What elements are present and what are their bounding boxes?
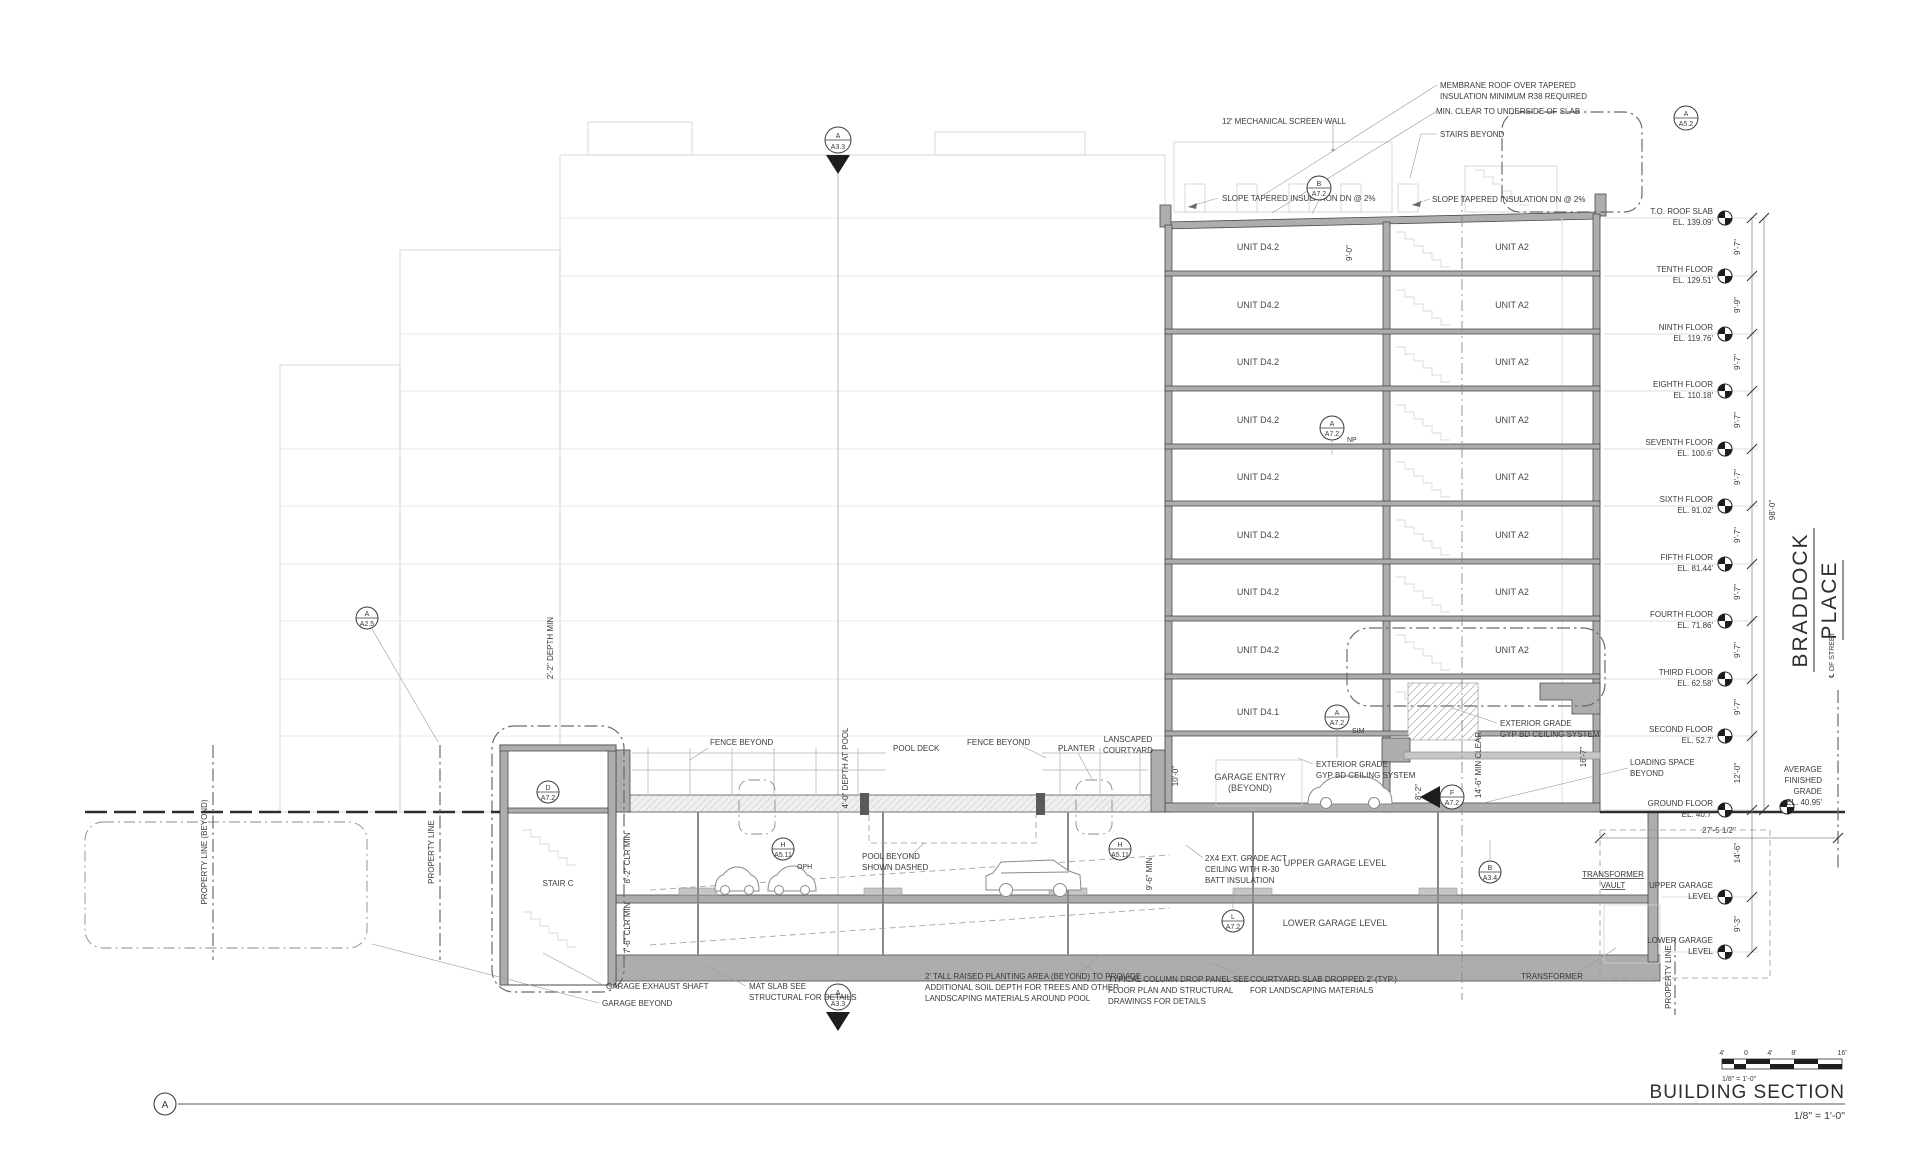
dim: 9'-7"	[1733, 527, 1742, 543]
wall-left	[1165, 225, 1172, 812]
scale-bar-4l: 4'	[1719, 1050, 1724, 1057]
scale-bar: 4' 0 4' 8' 16' 1/8" = 1'-0"	[1719, 1050, 1846, 1083]
callout-h-a511-right: H A5.11	[1109, 838, 1131, 860]
dim: 9'-9"	[1733, 297, 1742, 313]
dim: 9'-7"	[1733, 469, 1742, 485]
upper-garage-label: UPPER GARAGE LEVEL	[1284, 858, 1387, 868]
callout-sim: SIM	[1352, 728, 1365, 735]
level-name: FIFTH FLOOR	[1661, 553, 1714, 562]
car-small-1	[715, 867, 759, 895]
level-el: EL. 71.86'	[1677, 621, 1713, 630]
garage-beyond-note: GARAGE BEYOND	[602, 999, 672, 1008]
landscaped-courtyard-1: LANSCAPED	[1104, 735, 1153, 744]
courtyard-slab-note-1: COURTYARD SLAB DROPPED 2' (TYP.)	[1250, 975, 1397, 984]
unit-label: UNIT A2	[1495, 472, 1529, 482]
level-el: LEVEL	[1688, 947, 1713, 956]
mat-slab-note-1: MAT SLAB SEE	[749, 982, 806, 991]
unit-label: UNIT D4.2	[1237, 300, 1279, 310]
avg-grade-label: AVERAGE FINISHED GRADE EL. 40.95'	[1784, 765, 1823, 807]
pool-dashed-note-1: POOL BEYOND	[862, 852, 920, 861]
courtyard-wall-dim: 10'-0"	[1171, 766, 1180, 787]
callout-l-a72: L A7.2	[1222, 910, 1244, 932]
callout-sheet: A5.2	[1679, 121, 1694, 128]
hatched-ceiling-area	[1408, 683, 1478, 740]
callout-sheet: A2.5	[360, 621, 375, 628]
entry-ceiling	[1404, 752, 1600, 759]
callout-letter: B	[1488, 865, 1493, 872]
wall-interior	[1383, 222, 1390, 812]
unit-label: UNIT A2	[1495, 300, 1529, 310]
section-flag-top: A A3.3	[825, 127, 851, 174]
callout-letter: H	[780, 842, 785, 849]
fence-beyond-right: FENCE BEYOND	[967, 738, 1030, 747]
dim: 9'-7"	[1733, 699, 1742, 715]
background-floor-lines	[280, 218, 1165, 736]
unit-label: UNIT D4.2	[1237, 645, 1279, 655]
level-name: SIXTH FLOOR	[1660, 495, 1714, 504]
callout-np: NP	[1347, 437, 1357, 444]
level-el: EL. 62.58'	[1677, 679, 1713, 688]
level-name: NINTH FLOOR	[1659, 323, 1713, 332]
dim: 9'-7"	[1733, 239, 1742, 255]
garage-entry-label-1: GARAGE ENTRY	[1214, 772, 1285, 782]
fence-beyond-left: FENCE BEYOND	[710, 738, 773, 747]
garage-exhaust-note: GARAGE EXHAUST SHAFT	[606, 982, 709, 991]
detail-letter: A	[162, 1100, 169, 1111]
callout-a-a52: A A5.2	[1674, 106, 1698, 130]
callout-b-a34: B A3.4	[1479, 840, 1501, 883]
level-name: FOURTH FLOOR	[1650, 610, 1713, 619]
roof-slab	[1165, 212, 1600, 229]
section-arrow-top	[826, 155, 850, 174]
loading-height-dim: 16'-7"	[1579, 747, 1588, 768]
unit-label: UNIT A2	[1495, 530, 1529, 540]
level-el: EL. 40.7'	[1682, 810, 1714, 819]
overall-dim: 98'-0"	[1768, 500, 1777, 521]
transformer-note: TRANSFORMER	[1521, 972, 1583, 981]
callout-sheet: A7.2	[1330, 720, 1345, 727]
property-line-beyond-label: PROPERTY LINE (BEYOND)	[200, 799, 209, 904]
callout-a-a25: A A2.5	[356, 607, 438, 742]
callout-sheet: A7.2	[541, 795, 556, 802]
drop-panel-note-2: FLOOR PLAN AND STRUCTURAL	[1108, 986, 1234, 995]
avg-grade-2: FINISHED	[1785, 776, 1823, 785]
membrane-note-1: MEMBRANE ROOF OVER TAPERED	[1440, 81, 1576, 90]
dim: 9'-7"	[1733, 354, 1742, 370]
slope-note-right: SLOPE TAPERED INSULATION DN @ 2%	[1432, 195, 1586, 204]
unit-labels: UNIT D4.2 UNIT D4.2 UNIT D4.2 UNIT D4.2 …	[1214, 242, 1529, 928]
callout-sheet: A7.2	[1325, 431, 1340, 438]
callout-letter: A	[1684, 111, 1689, 118]
street-name-braddock: BRADDOCK	[1789, 532, 1812, 667]
underground-structure-beyond	[85, 822, 367, 948]
deck-wall-right	[1151, 750, 1165, 812]
scale-bar-4r: 4'	[1767, 1050, 1772, 1057]
pool-deck-label: POOL DECK	[893, 744, 940, 753]
unit-label: UNIT D4.2	[1237, 415, 1279, 425]
pool-wall-right	[1036, 793, 1045, 815]
membrane-note-2: INSULATION MINIMUM R38 REQUIRED	[1440, 92, 1587, 101]
callout-b-a72: B A7.2	[1307, 176, 1331, 214]
entry-clear-dim: 14'-6" MIN CLEAR	[1474, 732, 1483, 798]
level-name: SEVENTH FLOOR	[1645, 438, 1713, 447]
level-name: EIGHTH FLOOR	[1653, 380, 1713, 389]
unit-label: UNIT A2	[1495, 242, 1529, 252]
pool-dashed-note-2: SHOWN DASHED	[862, 863, 928, 872]
drop-panel-note-3: DRAWINGS FOR DETAILS	[1108, 997, 1206, 1006]
dim: 14'-6"	[1733, 843, 1742, 864]
avg-grade-1: AVERAGE	[1784, 765, 1822, 774]
ext-gyp-second-2: GYP BD CEILING SYSTEM	[1500, 730, 1600, 739]
lower-garage-label: LOWER GARAGE LEVEL	[1283, 918, 1388, 928]
vault-label-2: VAULT	[1601, 881, 1626, 890]
level-name: TENTH FLOOR	[1657, 265, 1714, 274]
car-entry	[1308, 776, 1392, 809]
level-name: UPPER GARAGE	[1649, 881, 1713, 890]
parapet-left	[1160, 205, 1171, 227]
callout-letter: F	[1450, 790, 1454, 797]
callout-sheet: A7.2	[1312, 191, 1327, 198]
section-flag-top-sheet: A3.3	[831, 144, 846, 151]
street-offset-dim: 27'-5 1/2"	[1702, 826, 1736, 835]
callout-sheet: A5.11	[1111, 852, 1129, 859]
roof-stair-overrun	[1465, 166, 1557, 212]
property-line-left-label: PROPERTY LINE	[427, 820, 436, 884]
callout-sheet: A3.4	[1483, 875, 1498, 882]
ext-gyp-ground-1: EXTERIOR GRADE	[1316, 760, 1388, 769]
courtyard-slab-note-2: FOR LANDSCAPING MATERIALS	[1250, 986, 1373, 995]
fence-graphic	[632, 748, 1148, 795]
detail-letter-bubble: A	[154, 1093, 176, 1115]
wall-right	[1593, 214, 1600, 812]
section-flag-top-letter: A	[836, 133, 841, 140]
level-el: EL. 129.51'	[1673, 276, 1714, 285]
building-section-sheet: A A3.3 A A3.3	[0, 0, 1920, 1152]
parapet-right	[1595, 194, 1606, 216]
stair-c-tower: STAIR C	[492, 726, 624, 992]
pool-depth-dim: 4'-0" DEPTH AT POOL	[841, 727, 850, 809]
callout-sheet: A7.2	[1445, 800, 1460, 807]
landscaped-courtyard-2: COURTYARD	[1103, 746, 1153, 755]
street-name-place: PLACE	[1818, 561, 1841, 640]
act-ceiling-note-2: CEILING WITH R-30	[1205, 865, 1280, 874]
building-section-drawing: A A3.3 A A3.3	[0, 0, 1920, 1152]
screen-wall-note: 12' MECHANICAL SCREEN WALL	[1222, 117, 1347, 126]
deck-wall-left	[616, 750, 630, 812]
unit-label: UNIT A2	[1495, 415, 1529, 425]
pool-wall-left	[860, 793, 869, 815]
drop-panel-note-1: TYPICAL COLUMN DROP PANEL SEE	[1108, 975, 1249, 984]
background-building-elevation	[280, 122, 1165, 812]
dim: 9'-7"	[1733, 412, 1742, 428]
title-block: 4' 0 4' 8' 16' 1/8" = 1'-0" BUILDING SEC…	[154, 1050, 1847, 1122]
level-el: EL. 81.44'	[1677, 564, 1713, 573]
level-name: SECOND FLOOR	[1649, 725, 1713, 734]
garage-clear-dim: 9'-6" MIN	[1145, 857, 1154, 890]
planting-note-3: LANDSCAPING MATERIALS AROUND POOL	[925, 994, 1091, 1003]
section-flag-bottom: A A3.3	[825, 984, 851, 1031]
callout-sheet: A5.11	[774, 852, 792, 859]
min-clear-note: MIN. CLEAR TO UNDERSIDE OF SLAB	[1436, 107, 1580, 116]
avg-grade-4: EL. 40.95'	[1786, 798, 1822, 807]
callout-letter: A	[1330, 421, 1335, 428]
callout-h-a511-left: H A5.11	[772, 838, 794, 860]
unit-label: UNIT D4.1	[1237, 707, 1279, 717]
unit-label: UNIT D4.2	[1237, 472, 1279, 482]
ext-gyp-ground-2: GYP BD CEILING SYSTEM	[1316, 771, 1416, 780]
callout-letter: D	[545, 785, 550, 792]
level-el: EL. 52.7'	[1682, 736, 1714, 745]
planter-label: PLANTER	[1058, 744, 1095, 753]
level-el: EL. 91.02'	[1677, 506, 1713, 515]
stair-clear-lower-dim: 7'-6" CLR MIN	[623, 902, 632, 953]
level-name: LOWER GARAGE	[1647, 936, 1713, 945]
slope-note-left: SLOPE TAPERED INSULATION DN @ 2%	[1222, 194, 1376, 203]
garage-entry-label-2: (BEYOND)	[1228, 783, 1272, 793]
unit-label: UNIT D4.2	[1237, 587, 1279, 597]
level-el: EL. 139.09'	[1673, 218, 1714, 227]
level-el: EL. 110.18'	[1673, 391, 1713, 400]
drawing-title: BUILDING SECTION	[1650, 1082, 1845, 1103]
level-name: THIRD FLOOR	[1659, 668, 1713, 677]
unit-label: UNIT A2	[1495, 357, 1529, 367]
dim: 12'-0"	[1733, 763, 1742, 784]
stair-c-label: STAIR C	[543, 879, 574, 888]
section-flag-bottom-sheet: A3.3	[831, 1001, 846, 1008]
upper-garage-slab	[508, 895, 1655, 903]
callout-letter: A	[365, 611, 370, 618]
dim: 9'-7"	[1733, 642, 1742, 658]
pool-profile-dashed	[869, 815, 1036, 843]
loading-step	[1540, 683, 1600, 714]
unit-label: UNIT A2	[1495, 645, 1529, 655]
act-ceiling-note-1: 2X4 EXT. GRADE ACT	[1205, 854, 1287, 863]
section-arrow-bottom	[826, 1012, 850, 1031]
stairs-beyond-note: STAIRS BEYOND	[1440, 130, 1505, 139]
callout-letter: H	[1117, 842, 1122, 849]
loading-space-2: BEYOND	[1630, 769, 1664, 778]
level-name: T.O. ROOF SLAB	[1650, 207, 1713, 216]
stair-clear-upper-dim: 8'-2" CLR MIN	[623, 832, 632, 883]
callout-d-a72: D A7.2	[537, 781, 559, 803]
dim: 9'-7"	[1733, 584, 1742, 600]
planting-note-2: ADDITIONAL SOIL DEPTH FOR TREES AND OTHE…	[925, 983, 1119, 992]
courtyard-slab	[616, 795, 1165, 812]
level-el: EL. 100.6'	[1677, 449, 1713, 458]
vault-label-1: TRANSFORMER	[1582, 870, 1644, 879]
callout-letter: L	[1231, 914, 1235, 921]
property-line-right-label: PROPERTY LINE	[1664, 945, 1673, 1009]
unit-label: UNIT D4.2	[1237, 530, 1279, 540]
scale-bar-16: 16'	[1837, 1050, 1846, 1057]
unit-label: UNIT A2	[1495, 587, 1529, 597]
level-name: GROUND FLOOR	[1648, 799, 1714, 808]
roof-clear-dim: 9'-0"	[1345, 245, 1354, 261]
act-ceiling-note-3: BATT INSULATION	[1205, 876, 1275, 885]
unit-label: UNIT D4.2	[1237, 357, 1279, 367]
ramp-dashed-lower	[650, 908, 1170, 945]
scale-bar-0: 0	[1744, 1050, 1748, 1057]
mat-slab-note-2: STRUCTURAL FOR DETAILS	[749, 993, 857, 1002]
scale-bar-8: 8'	[1791, 1050, 1796, 1057]
dim: 9'-3"	[1733, 916, 1742, 932]
loading-space-1: LOADING SPACE	[1630, 758, 1695, 767]
drawing-scale: 1/8" = 1'-0"	[1794, 1110, 1845, 1122]
cut-building-section	[1160, 142, 1606, 812]
callout-sheet: A7.2	[1226, 924, 1241, 931]
level-el: EL. 119.76'	[1673, 334, 1713, 343]
ext-gyp-second-1: EXTERIOR GRADE	[1500, 719, 1572, 728]
avg-grade-3: GRADE	[1794, 787, 1822, 796]
callout-letter: A	[1335, 710, 1340, 717]
car-suv	[986, 860, 1081, 897]
planter-depth-dim: 2'-2" DEPTH MIN	[546, 617, 555, 679]
level-el: LEVEL	[1688, 892, 1713, 901]
callout-letter: B	[1317, 181, 1322, 188]
unit-label: UNIT D4.2	[1237, 242, 1279, 252]
oph-label: OPH	[797, 864, 812, 871]
